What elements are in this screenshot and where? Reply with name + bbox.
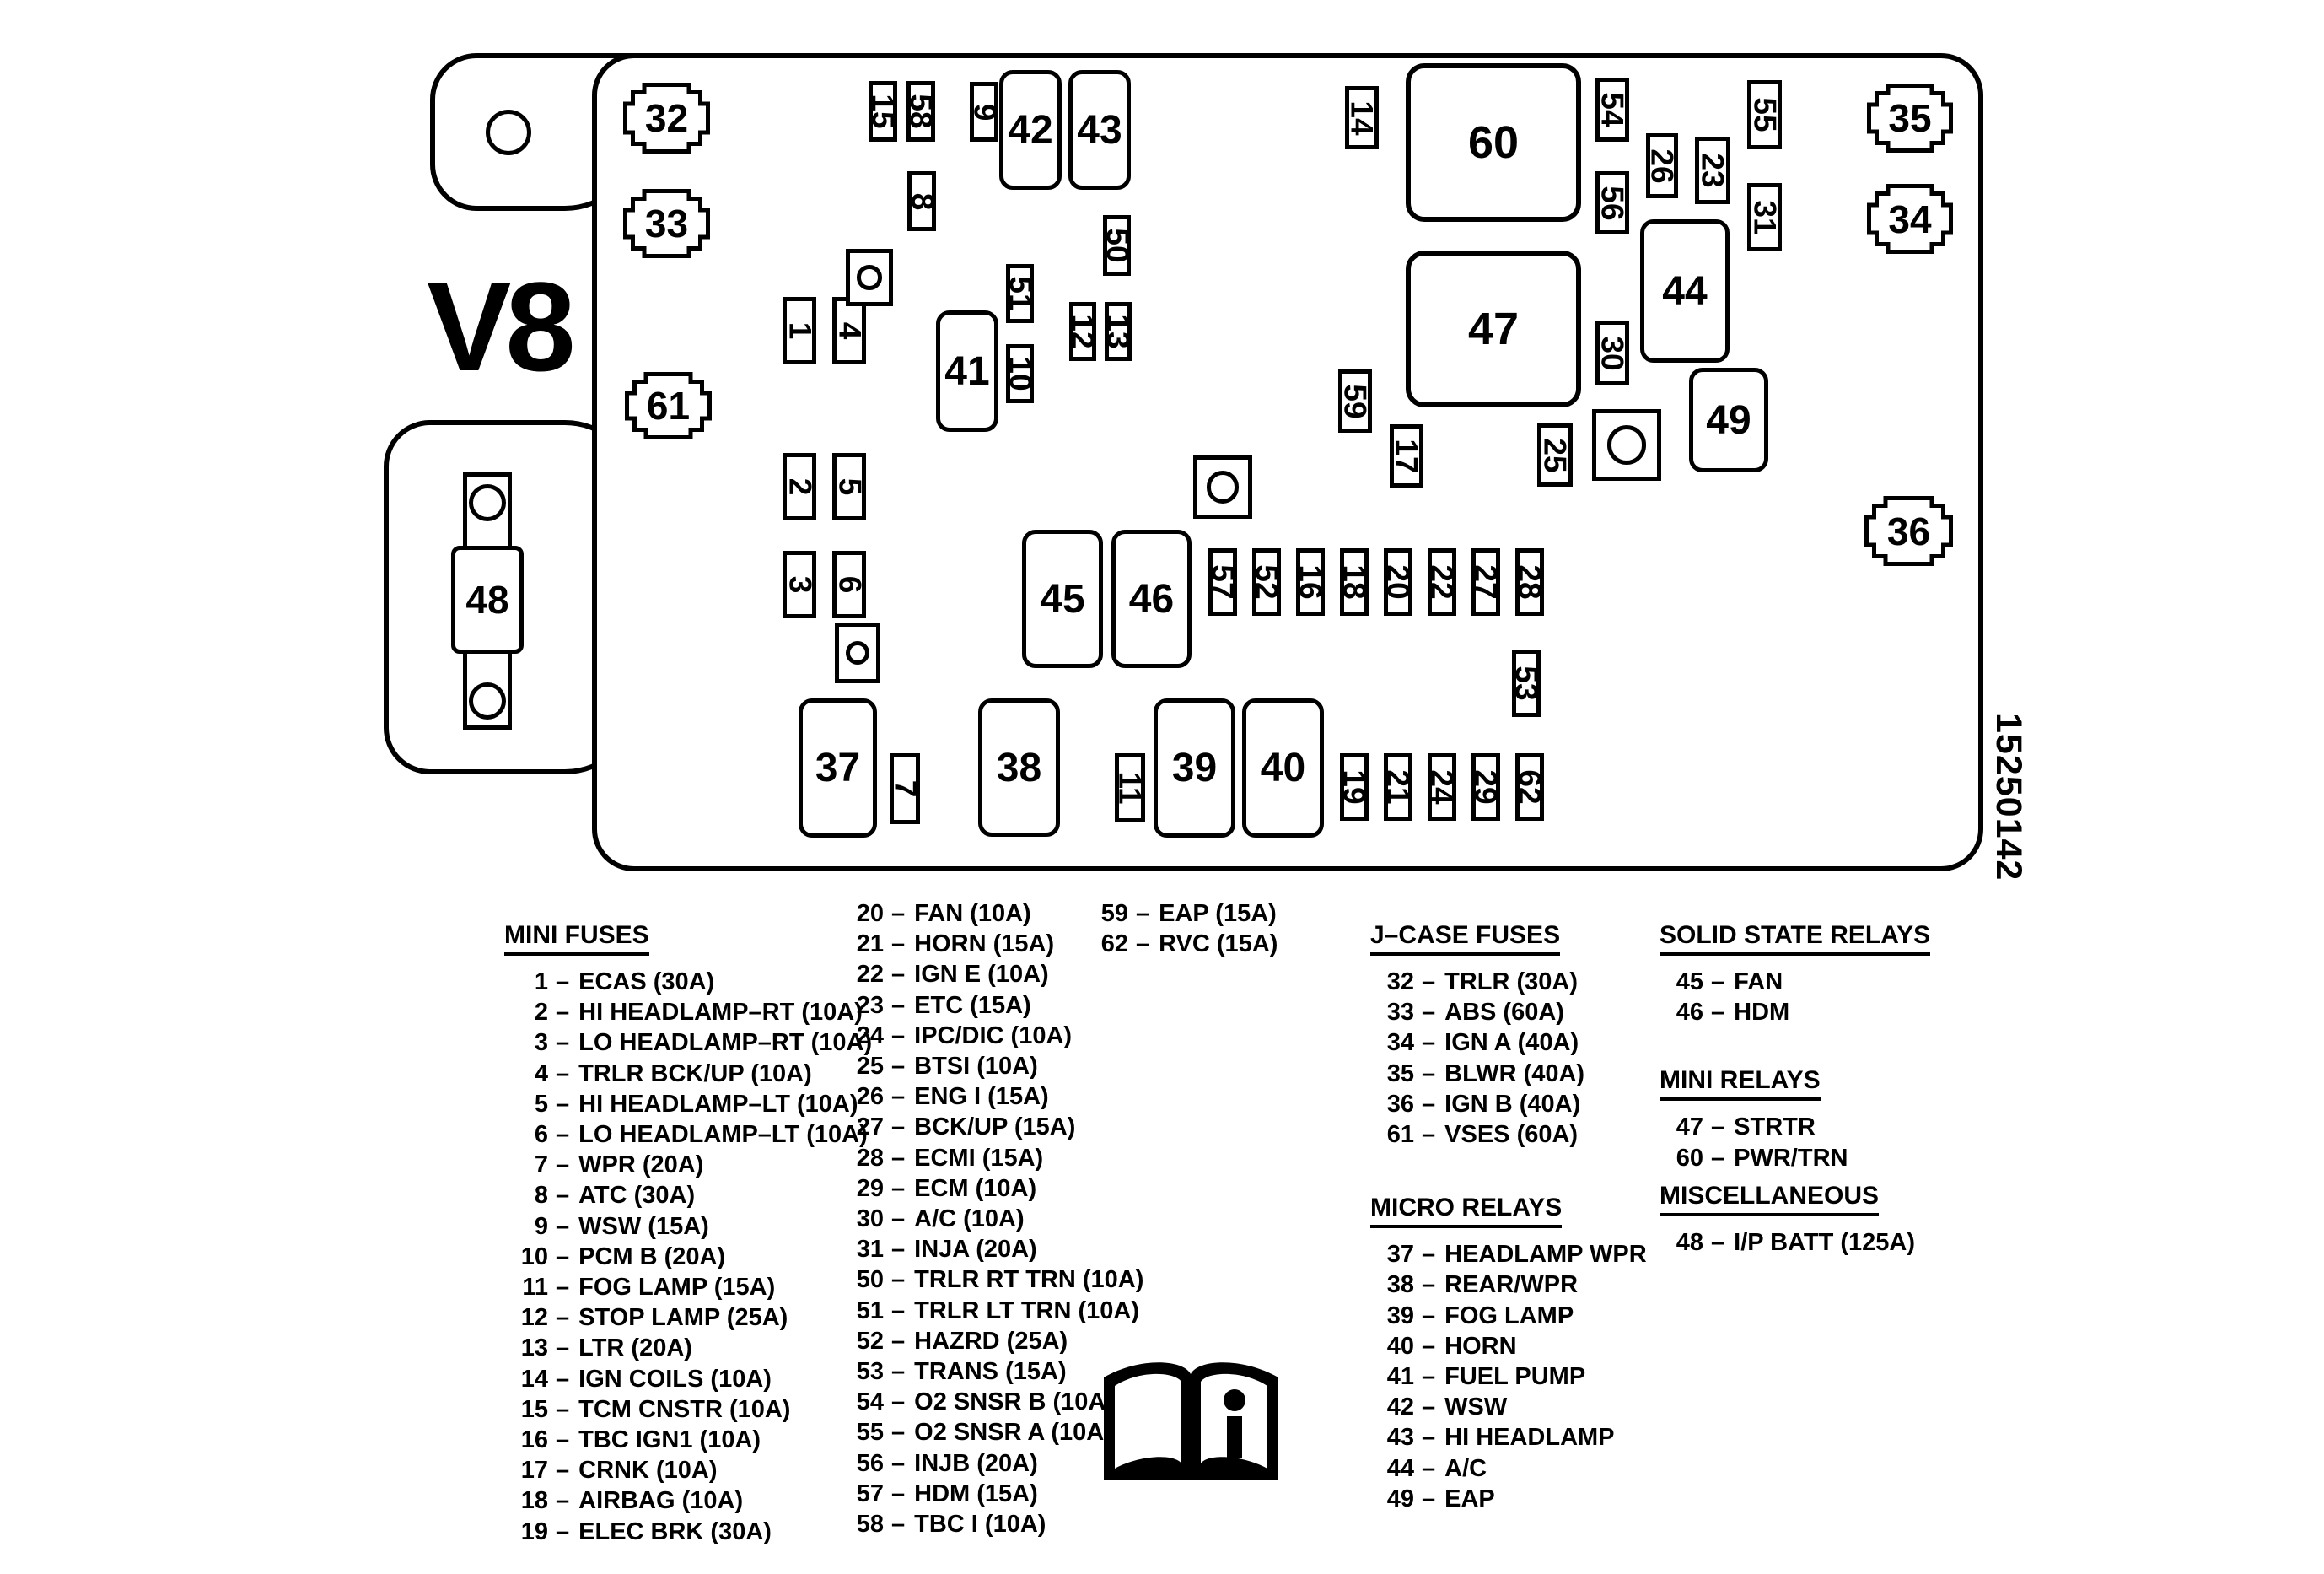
legend-column-2: 20–FAN (10A)21–HORN (15A)22–IGN E (10A)2…	[840, 898, 1143, 1539]
legend-fuse-number: 60	[1660, 1143, 1703, 1173]
fuse-number: 50	[1100, 228, 1135, 262]
legend-fuse-label: PWR/TRN	[1734, 1143, 1848, 1173]
mounting-hole	[835, 623, 880, 683]
legend-fuse-number: 5	[504, 1089, 548, 1119]
legend-fuse-label: STRTR	[1734, 1112, 1816, 1142]
fuse-number: 22	[1424, 564, 1460, 599]
legend-fuse-label: I/P BATT (125A)	[1734, 1227, 1915, 1258]
fuse-17: 17	[1390, 424, 1423, 488]
legend-fuse-number: 42	[1370, 1392, 1414, 1422]
legend-row-53: 53–TRANS (15A)	[840, 1356, 1143, 1387]
legend-dash: –	[884, 990, 914, 1021]
fuse-number: 28	[1512, 564, 1547, 599]
legend-fuse-label: ATC (30A)	[578, 1180, 695, 1210]
fuse-44: 44	[1640, 219, 1730, 363]
legend-dash: –	[884, 1509, 914, 1539]
fuse-56: 56	[1595, 171, 1629, 234]
legend-dash: –	[1414, 1027, 1444, 1058]
fuse-8: 8	[907, 171, 936, 231]
legend-row-29: 29–ECM (10A)	[840, 1173, 1143, 1204]
mounting-hole	[846, 249, 893, 306]
fuse-number: 30	[1595, 336, 1630, 370]
fuse-35: 35	[1866, 83, 1954, 154]
fuse-24: 24	[1428, 753, 1456, 821]
fuse-16: 16	[1296, 548, 1325, 616]
fuse-number: 51	[1003, 276, 1038, 310]
legend-dash: –	[884, 1234, 914, 1264]
legend-dash: –	[884, 1051, 914, 1081]
fuse-number: 55	[1747, 97, 1783, 132]
mounting-hole	[1193, 455, 1252, 519]
legend-fuse-number: 39	[1370, 1301, 1414, 1331]
legend-row-41: 41–FUEL PUMP	[1370, 1361, 1647, 1392]
legend-dash: –	[548, 1211, 578, 1242]
legend-fuse-number: 9	[504, 1211, 548, 1242]
legend-dash: –	[548, 1027, 578, 1058]
fuse-49: 49	[1689, 368, 1768, 472]
fuse-40: 40	[1242, 698, 1324, 838]
legend-fuse-number: 32	[1370, 967, 1414, 997]
legend-section: SOLID STATE RELAYS45–FAN46–HDM	[1660, 921, 1930, 1027]
legend-fuse-label: HORN	[1444, 1331, 1516, 1361]
fuse-38: 38	[978, 698, 1060, 837]
legend-fuse-number: 30	[840, 1204, 884, 1234]
legend-dash: –	[884, 1264, 914, 1295]
legend-fuse-number: 57	[840, 1479, 884, 1509]
legend-fuse-label: TRLR RT TRN (10A)	[914, 1264, 1143, 1295]
legend-row-15: 15–TCM CNSTR (10A)	[504, 1394, 872, 1425]
legend-dash: –	[1703, 997, 1734, 1027]
legend-fuse-label: BLWR (40A)	[1444, 1059, 1584, 1089]
fuse-54: 54	[1595, 78, 1629, 142]
legend-column-5: SOLID STATE RELAYS45–FAN46–HDMMINI RELAY…	[1660, 921, 1930, 1258]
fuse-30: 30	[1595, 321, 1629, 385]
legend-fuse-number: 25	[840, 1051, 884, 1081]
legend-row-55: 55–O2 SNSR A (10A)	[840, 1417, 1143, 1447]
legend-fuse-label: BCK/UP (15A)	[914, 1112, 1075, 1142]
fuse-box-diagram-page: V8 15250142 3233613534361558981454552623…	[0, 0, 2324, 1574]
legend-heading: MISCELLANEOUS	[1660, 1182, 1879, 1216]
legend-dash: –	[548, 1425, 578, 1455]
legend-dash: –	[1128, 898, 1159, 929]
fuse-41: 41	[936, 310, 998, 432]
legend-dash: –	[884, 1479, 914, 1509]
legend-fuse-label: VSES (60A)	[1444, 1119, 1578, 1150]
fuse-5: 5	[832, 453, 866, 520]
legend-heading: MINI RELAYS	[1660, 1066, 1821, 1101]
legend-row-58: 58–TBC I (10A)	[840, 1509, 1143, 1539]
fuse-59: 59	[1338, 369, 1372, 433]
fuse-11: 11	[1115, 753, 1145, 822]
legend-fuse-label: LO HEADLAMP–RT (10A)	[578, 1027, 872, 1058]
legend-fuse-number: 62	[1084, 929, 1128, 959]
legend-dash: –	[548, 1119, 578, 1150]
legend-section: MINI RELAYS47–STRTR60–PWR/TRN	[1660, 1066, 1930, 1172]
legend-row-16: 16–TBC IGN1 (10A)	[504, 1425, 872, 1455]
fuse-28: 28	[1515, 548, 1544, 616]
fuse-60: 60	[1406, 63, 1581, 222]
fuse-number: 14	[1344, 100, 1380, 135]
legend-fuse-label: LTR (20A)	[578, 1333, 692, 1363]
fuse-51: 51	[1006, 264, 1034, 323]
fuse-number: 61	[647, 383, 690, 429]
legend-fuse-number: 61	[1370, 1119, 1414, 1150]
fuse-number: 25	[1537, 438, 1573, 472]
legend-fuse-number: 48	[1660, 1227, 1703, 1258]
fuse-1: 1	[783, 297, 816, 364]
legend-dash: –	[884, 1173, 914, 1204]
fuse-number: 47	[1468, 303, 1519, 355]
legend-dash: –	[884, 898, 914, 929]
legend-heading: MINI FUSES	[504, 921, 649, 956]
legend-fuse-label: TCM CNSTR (10A)	[578, 1394, 790, 1425]
fuse-number: 27	[1468, 564, 1504, 599]
legend-dash: –	[1414, 1392, 1444, 1422]
legend-row-43: 43–HI HEADLAMP	[1370, 1422, 1647, 1453]
legend-fuse-label: TRLR LT TRN (10A)	[914, 1296, 1139, 1326]
legend-row-42: 42–WSW	[1370, 1392, 1647, 1422]
fuse-52: 52	[1252, 548, 1281, 616]
legend-row-37: 37–HEADLAMP WPR	[1370, 1239, 1647, 1269]
fuse-number: 32	[645, 95, 688, 141]
legend-fuse-label: FAN (10A)	[914, 898, 1031, 929]
legend-dash: –	[548, 1302, 578, 1333]
legend-fuse-number: 22	[840, 959, 884, 989]
fuse-number: 37	[815, 745, 860, 791]
legend-fuse-number: 1	[504, 967, 548, 997]
legend-row-47: 47–STRTR	[1660, 1112, 1930, 1142]
legend-dash: –	[1414, 1059, 1444, 1089]
legend-fuse-number: 23	[840, 990, 884, 1021]
legend-fuse-label: STOP LAMP (25A)	[578, 1302, 788, 1333]
legend-row-5: 5–HI HEADLAMP–LT (10A)	[504, 1089, 872, 1119]
legend-section: 20–FAN (10A)21–HORN (15A)22–IGN E (10A)2…	[840, 898, 1143, 1539]
fuse-32: 32	[622, 82, 711, 154]
legend-dash: –	[548, 1059, 578, 1089]
legend-row-6: 6–LO HEADLAMP–LT (10A)	[504, 1119, 872, 1150]
legend-fuse-label: HAZRD (25A)	[914, 1326, 1068, 1356]
legend-row-50: 50–TRLR RT TRN (10A)	[840, 1264, 1143, 1295]
fuse-7: 7	[890, 753, 920, 824]
legend-row-2: 2–HI HEADLAMP–RT (10A)	[504, 997, 872, 1027]
legend-fuse-label: HDM (15A)	[914, 1479, 1038, 1509]
legend-fuse-number: 36	[1370, 1089, 1414, 1119]
legend-fuse-number: 38	[1370, 1269, 1414, 1300]
fuse-number: 46	[1129, 576, 1174, 623]
legend-dash: –	[548, 1485, 578, 1516]
legend-dash: –	[548, 1150, 578, 1180]
fuse-25: 25	[1537, 423, 1573, 487]
legend-fuse-label: TRLR BCK/UP (10A)	[578, 1059, 812, 1089]
legend-row-52: 52–HAZRD (25A)	[840, 1326, 1143, 1356]
fuse-number: 10	[1003, 356, 1038, 391]
fuse-number: 53	[1509, 666, 1544, 700]
legend-fuse-number: 34	[1370, 1027, 1414, 1058]
fuse-number: 15	[865, 94, 901, 128]
legend-column-3: 59–EAP (15A)62–RVC (15A)	[1084, 898, 1278, 959]
legend-dash: –	[884, 1204, 914, 1234]
legend-row-33: 33–ABS (60A)	[1370, 997, 1647, 1027]
legend-row-22: 22–IGN E (10A)	[840, 959, 1143, 989]
legend-fuse-number: 3	[504, 1027, 548, 1058]
legend-fuse-label: ABS (60A)	[1444, 997, 1564, 1027]
legend-fuse-label: LO HEADLAMP–LT (10A)	[578, 1119, 868, 1150]
legend-fuse-number: 55	[840, 1417, 884, 1447]
legend-fuse-label: ECM (10A)	[914, 1173, 1036, 1204]
legend-dash: –	[1703, 1112, 1734, 1142]
legend-fuse-number: 18	[504, 1485, 548, 1516]
legend-row-28: 28–ECMI (15A)	[840, 1143, 1143, 1173]
legend-fuse-label: FOG LAMP (15A)	[578, 1272, 775, 1302]
legend-fuse-label: HI HEADLAMP–RT (10A)	[578, 997, 863, 1027]
legend-row-23: 23–ETC (15A)	[840, 990, 1143, 1021]
legend-row-25: 25–BTSI (10A)	[840, 1051, 1143, 1081]
legend-dash: –	[548, 1517, 578, 1547]
legend-fuse-number: 2	[504, 997, 548, 1027]
legend-fuse-number: 40	[1370, 1331, 1414, 1361]
legend-fuse-label: BTSI (10A)	[914, 1051, 1038, 1081]
fuse-47: 47	[1406, 251, 1581, 407]
legend-fuse-number: 35	[1370, 1059, 1414, 1089]
legend-fuse-label: IGN E (10A)	[914, 959, 1049, 989]
legend-fuse-label: A/C (10A)	[914, 1204, 1025, 1234]
legend-fuse-number: 33	[1370, 997, 1414, 1027]
legend-dash: –	[1414, 1269, 1444, 1300]
fuse-number: 42	[1008, 107, 1052, 154]
mounting-bolt-hole	[486, 110, 531, 155]
fuse-39: 39	[1154, 698, 1235, 838]
legend-section: MICRO RELAYS37–HEADLAMP WPR38–REAR/WPR39…	[1370, 1194, 1647, 1514]
hole-circle	[1207, 471, 1239, 503]
legend-fuse-label: TRLR (30A)	[1444, 967, 1578, 997]
legend-fuse-label: IGN B (40A)	[1444, 1089, 1580, 1119]
legend-row-51: 51–TRLR LT TRN (10A)	[840, 1296, 1143, 1326]
fuse-number: 19	[1337, 769, 1372, 804]
fuse-61: 61	[624, 371, 713, 440]
legend-fuse-label: O2 SNSR A (10A)	[914, 1417, 1112, 1447]
legend-dash: –	[884, 1387, 914, 1417]
maxi-fuse-terminal-top	[469, 484, 506, 521]
legend-fuse-number: 49	[1370, 1484, 1414, 1514]
legend-dash: –	[884, 959, 914, 989]
fuse-number: 43	[1077, 107, 1122, 154]
legend-fuse-label: IPC/DIC (10A)	[914, 1021, 1072, 1051]
fuse-number: 21	[1380, 769, 1416, 804]
fuse-22: 22	[1428, 548, 1456, 616]
fuse-34: 34	[1866, 183, 1954, 255]
legend-row-40: 40–HORN	[1370, 1331, 1647, 1361]
legend-fuse-number: 28	[840, 1143, 884, 1173]
legend-dash: –	[1703, 967, 1734, 997]
legend-row-59: 59–EAP (15A)	[1084, 898, 1278, 929]
legend-fuse-number: 52	[840, 1326, 884, 1356]
legend-dash: –	[884, 1021, 914, 1051]
legend-dash: –	[1414, 1119, 1444, 1150]
legend-fuse-number: 53	[840, 1356, 884, 1387]
fuse-46: 46	[1111, 530, 1192, 668]
fuse-14: 14	[1345, 86, 1379, 149]
legend-section: 59–EAP (15A)62–RVC (15A)	[1084, 898, 1278, 959]
legend-fuse-label: EAP (15A)	[1159, 898, 1277, 929]
legend-fuse-label: ECMI (15A)	[914, 1143, 1043, 1173]
fuse-number: 38	[997, 745, 1041, 791]
legend-row-7: 7–WPR (20A)	[504, 1150, 872, 1180]
legend-fuse-number: 51	[840, 1296, 884, 1326]
legend-fuse-label: IGN A (40A)	[1444, 1027, 1579, 1058]
legend-fuse-label: TBC IGN1 (10A)	[578, 1425, 761, 1455]
legend-fuse-label: RVC (15A)	[1159, 929, 1278, 959]
fuse-37: 37	[799, 698, 877, 838]
legend-dash: –	[548, 1180, 578, 1210]
fuse-number: 31	[1747, 200, 1783, 234]
legend-fuse-number: 59	[1084, 898, 1128, 929]
legend-row-46: 46–HDM	[1660, 997, 1930, 1027]
legend-fuse-number: 6	[504, 1119, 548, 1150]
legend-fuse-number: 19	[504, 1517, 548, 1547]
legend-fuse-label: ELEC BRK (30A)	[578, 1517, 772, 1547]
fuse-number: 17	[1389, 439, 1424, 473]
legend-fuse-label: HI HEADLAMP	[1444, 1422, 1614, 1453]
legend-heading: J–CASE FUSES	[1370, 921, 1560, 956]
fuse-42: 42	[999, 70, 1062, 190]
fuse-number: 11	[1112, 771, 1148, 804]
fuse-26: 26	[1646, 133, 1678, 198]
legend-fuse-label: EAP	[1444, 1484, 1495, 1514]
fuse-19: 19	[1340, 753, 1369, 821]
part-number: 15250142	[1990, 713, 2029, 870]
legend-fuse-number: 56	[840, 1448, 884, 1479]
mounting-hole	[1592, 409, 1661, 481]
fuse-number: 58	[903, 94, 939, 128]
legend-fuse-number: 29	[840, 1173, 884, 1204]
legend-row-9: 9–WSW (15A)	[504, 1211, 872, 1242]
legend-dash: –	[884, 1081, 914, 1112]
legend-dash: –	[548, 967, 578, 997]
legend-dash: –	[548, 1272, 578, 1302]
legend-dash: –	[548, 1333, 578, 1363]
legend-fuse-number: 41	[1370, 1361, 1414, 1392]
engine-variant-label: V8	[410, 263, 587, 390]
legend-row-19: 19–ELEC BRK (30A)	[504, 1517, 872, 1547]
legend-row-26: 26–ENG I (15A)	[840, 1081, 1143, 1112]
fuse-number: 12	[1065, 314, 1100, 348]
fuse-18: 18	[1340, 548, 1369, 616]
legend-fuse-label: ECAS (30A)	[578, 967, 714, 997]
legend-row-48: 48–I/P BATT (125A)	[1660, 1227, 1930, 1258]
legend-fuse-number: 11	[504, 1272, 548, 1302]
fuse-53: 53	[1512, 650, 1541, 717]
fuse-number: 9	[966, 103, 1002, 121]
fuse-number: 60	[1468, 116, 1519, 169]
legend-row-60: 60–PWR/TRN	[1660, 1143, 1930, 1173]
legend-section: MINI FUSES1–ECAS (30A)2–HI HEADLAMP–RT (…	[504, 921, 872, 1547]
legend-dash: –	[1414, 1089, 1444, 1119]
fuse-number: 3	[782, 576, 817, 594]
fuse-number: 62	[1512, 769, 1547, 804]
fuse-number: 18	[1337, 564, 1372, 599]
fuse-number: 6	[831, 576, 867, 594]
fuse-number: 59	[1337, 384, 1373, 418]
legend-row-45: 45–FAN	[1660, 967, 1930, 997]
hole-circle	[1607, 425, 1646, 464]
legend-fuse-number: 45	[1660, 967, 1703, 997]
legend-fuse-number: 37	[1370, 1239, 1414, 1269]
legend-row-14: 14–IGN COILS (10A)	[504, 1364, 872, 1394]
legend-fuse-label: INJB (20A)	[914, 1448, 1038, 1479]
fuse-number: 57	[1205, 564, 1240, 599]
legend-dash: –	[1414, 1484, 1444, 1514]
legend-heading: SOLID STATE RELAYS	[1660, 921, 1930, 956]
hole-circle	[857, 265, 881, 289]
legend-dash: –	[884, 1143, 914, 1173]
fuse-13: 13	[1105, 302, 1132, 361]
legend-fuse-label: O2 SNSR B (10A)	[914, 1387, 1114, 1417]
legend-row-34: 34–IGN A (40A)	[1370, 1027, 1647, 1058]
legend-row-17: 17–CRNK (10A)	[504, 1455, 872, 1485]
fuse-number: 8	[904, 192, 939, 210]
legend-dash: –	[548, 997, 578, 1027]
fuse-48: 48	[451, 546, 524, 654]
legend-dash: –	[548, 1394, 578, 1425]
legend-row-61: 61–VSES (60A)	[1370, 1119, 1647, 1150]
legend-dash: –	[1414, 1422, 1444, 1453]
fuse-36: 36	[1864, 495, 1954, 567]
legend-fuse-number: 27	[840, 1112, 884, 1142]
fuse-number: 54	[1595, 92, 1630, 127]
legend-fuse-number: 44	[1370, 1453, 1414, 1484]
fuse-number: 45	[1040, 576, 1084, 623]
fuse-10: 10	[1006, 344, 1034, 403]
legend-row-38: 38–REAR/WPR	[1370, 1269, 1647, 1300]
fuse-21: 21	[1384, 753, 1412, 821]
legend-row-54: 54–O2 SNSR B (10A)	[840, 1387, 1143, 1417]
legend-row-11: 11–FOG LAMP (15A)	[504, 1272, 872, 1302]
legend-dash: –	[1414, 1453, 1444, 1484]
legend-row-4: 4–TRLR BCK/UP (10A)	[504, 1059, 872, 1089]
maxi-fuse-terminal-bottom	[469, 682, 506, 720]
legend-fuse-label: PCM B (20A)	[578, 1242, 725, 1272]
legend-fuse-number: 47	[1660, 1112, 1703, 1142]
fuse-3: 3	[783, 551, 816, 618]
legend-fuse-number: 8	[504, 1180, 548, 1210]
legend-dash: –	[884, 1296, 914, 1326]
legend-fuse-label: FAN	[1734, 967, 1783, 997]
fuse-number: 16	[1293, 564, 1328, 599]
legend-row-24: 24–IPC/DIC (10A)	[840, 1021, 1143, 1051]
legend-row-49: 49–EAP	[1370, 1484, 1647, 1514]
fuse-number: 1	[782, 322, 817, 340]
fuse-31: 31	[1747, 183, 1782, 251]
legend-fuse-label: WSW	[1444, 1392, 1507, 1422]
legend-fuse-number: 26	[840, 1081, 884, 1112]
legend-fuse-label: WPR (20A)	[578, 1150, 703, 1180]
legend-row-32: 32–TRLR (30A)	[1370, 967, 1647, 997]
legend-dash: –	[548, 1364, 578, 1394]
fuse-number: 41	[944, 348, 989, 395]
legend-dash: –	[1414, 967, 1444, 997]
legend-fuse-label: FOG LAMP	[1444, 1301, 1574, 1331]
fuse-6: 6	[832, 551, 866, 618]
legend-fuse-number: 43	[1370, 1422, 1414, 1453]
legend-section: MISCELLANEOUS48–I/P BATT (125A)	[1660, 1182, 1930, 1258]
legend-fuse-label: ENG I (15A)	[914, 1081, 1049, 1112]
legend-column-1: MINI FUSES1–ECAS (30A)2–HI HEADLAMP–RT (…	[504, 921, 872, 1547]
legend-fuse-label: WSW (15A)	[578, 1211, 709, 1242]
fuse-number: 20	[1380, 564, 1416, 599]
legend-row-31: 31–INJA (20A)	[840, 1234, 1143, 1264]
legend-fuse-label: HORN (15A)	[914, 929, 1054, 959]
fuse-number: 52	[1249, 564, 1284, 599]
